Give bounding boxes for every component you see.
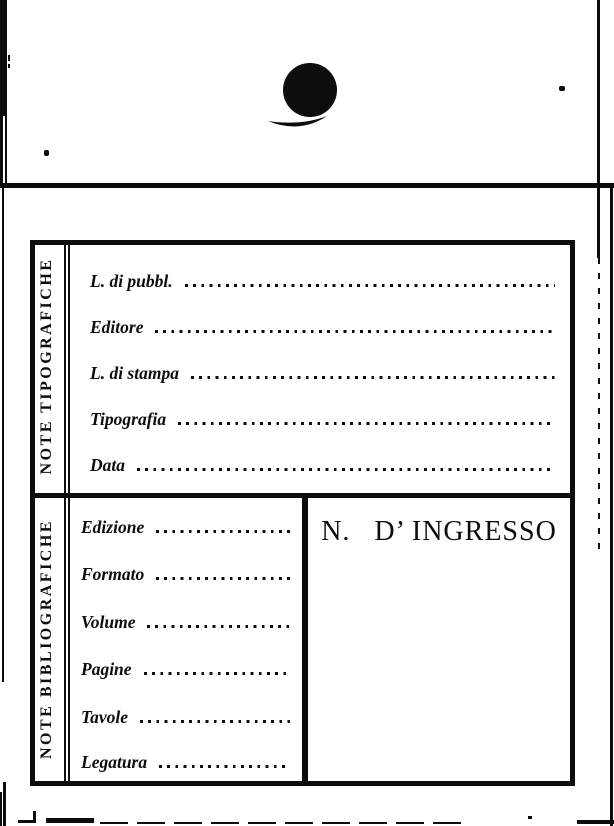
dotted-leader [137, 468, 555, 471]
field-label: L. di stampa [90, 363, 191, 383]
field-row-volume: Volume [81, 608, 290, 632]
field-label: Edizione [81, 517, 156, 537]
field-label: Tipografia [90, 409, 178, 429]
dotted-leader [140, 720, 290, 723]
field-label: Editore [90, 317, 155, 337]
dotted-leader [191, 376, 555, 379]
scan-edge-right-line-dashed [598, 258, 600, 558]
field-row-edizione: Edizione [81, 513, 290, 537]
dotted-leader [159, 765, 290, 768]
scanned-catalog-card: NOTE TIPOGRAFICHE NOTE BIBLIOGRAFICHE L.… [0, 0, 614, 826]
field-row-tipografia: Tipografia [90, 405, 555, 429]
ingresso-number-heading: N. D’ INGRESSO [308, 517, 570, 547]
field-label: Tavole [81, 707, 140, 727]
field-row-legatura: Legatura [81, 748, 290, 772]
dotted-leader [155, 330, 555, 333]
scan-edge-far-right-line [610, 188, 613, 826]
field-label: Data [90, 455, 137, 475]
side-label-note-bibliografiche: NOTE BIBLIOGRAFICHE [38, 501, 58, 777]
field-row-pagine: Pagine [81, 655, 290, 679]
dotted-leader [185, 284, 555, 287]
card-top-edge-rule [0, 183, 614, 188]
scan-stray-left-line-low [3, 782, 6, 826]
field-label: Pagine [81, 659, 144, 679]
double-rule-line [68, 245, 70, 781]
bottom-scan-artifact [46, 818, 94, 823]
field-label: Volume [81, 612, 147, 632]
double-rule-line [64, 245, 66, 781]
bottom-scan-artifact [528, 816, 532, 819]
bottom-scan-artifact [0, 792, 2, 826]
field-row-l-di-stampa: L. di stampa [90, 359, 555, 383]
ink-speck [44, 150, 49, 156]
dotted-leader [147, 625, 290, 628]
field-row-data: Data [90, 451, 555, 475]
ink-speck [8, 64, 10, 68]
field-label: L. di pubbl. [90, 271, 185, 291]
scan-stray-left-line [2, 188, 4, 682]
dotted-leader [144, 672, 290, 675]
dotted-leader [178, 422, 555, 425]
field-row-l-di-pubbl: L. di pubbl. [90, 267, 555, 291]
scan-edge-right-line [597, 0, 600, 258]
ink-speck [8, 55, 10, 61]
bottom-scan-artifact [577, 820, 614, 824]
ink-speck [559, 86, 565, 91]
field-label: Legatura [81, 752, 159, 772]
punch-hole-icon [255, 50, 365, 140]
field-row-formato: Formato [81, 560, 290, 584]
form-box: NOTE TIPOGRAFICHE NOTE BIBLIOGRAFICHE L.… [30, 240, 575, 786]
field-label: Formato [81, 564, 156, 584]
scan-edge-left-line-a [0, 112, 3, 188]
scan-edge-left-bar [0, 0, 7, 116]
field-row-tavole: Tavole [81, 703, 290, 727]
bottom-scan-artifact [100, 822, 465, 824]
side-label-note-tipografiche: NOTE TIPOGRAFICHE [38, 246, 58, 486]
scan-edge-left-line-b [5, 114, 7, 186]
bottom-scan-artifact [33, 811, 36, 821]
field-row-editore: Editore [90, 313, 555, 337]
dotted-leader [156, 530, 290, 533]
dotted-leader [156, 577, 290, 580]
